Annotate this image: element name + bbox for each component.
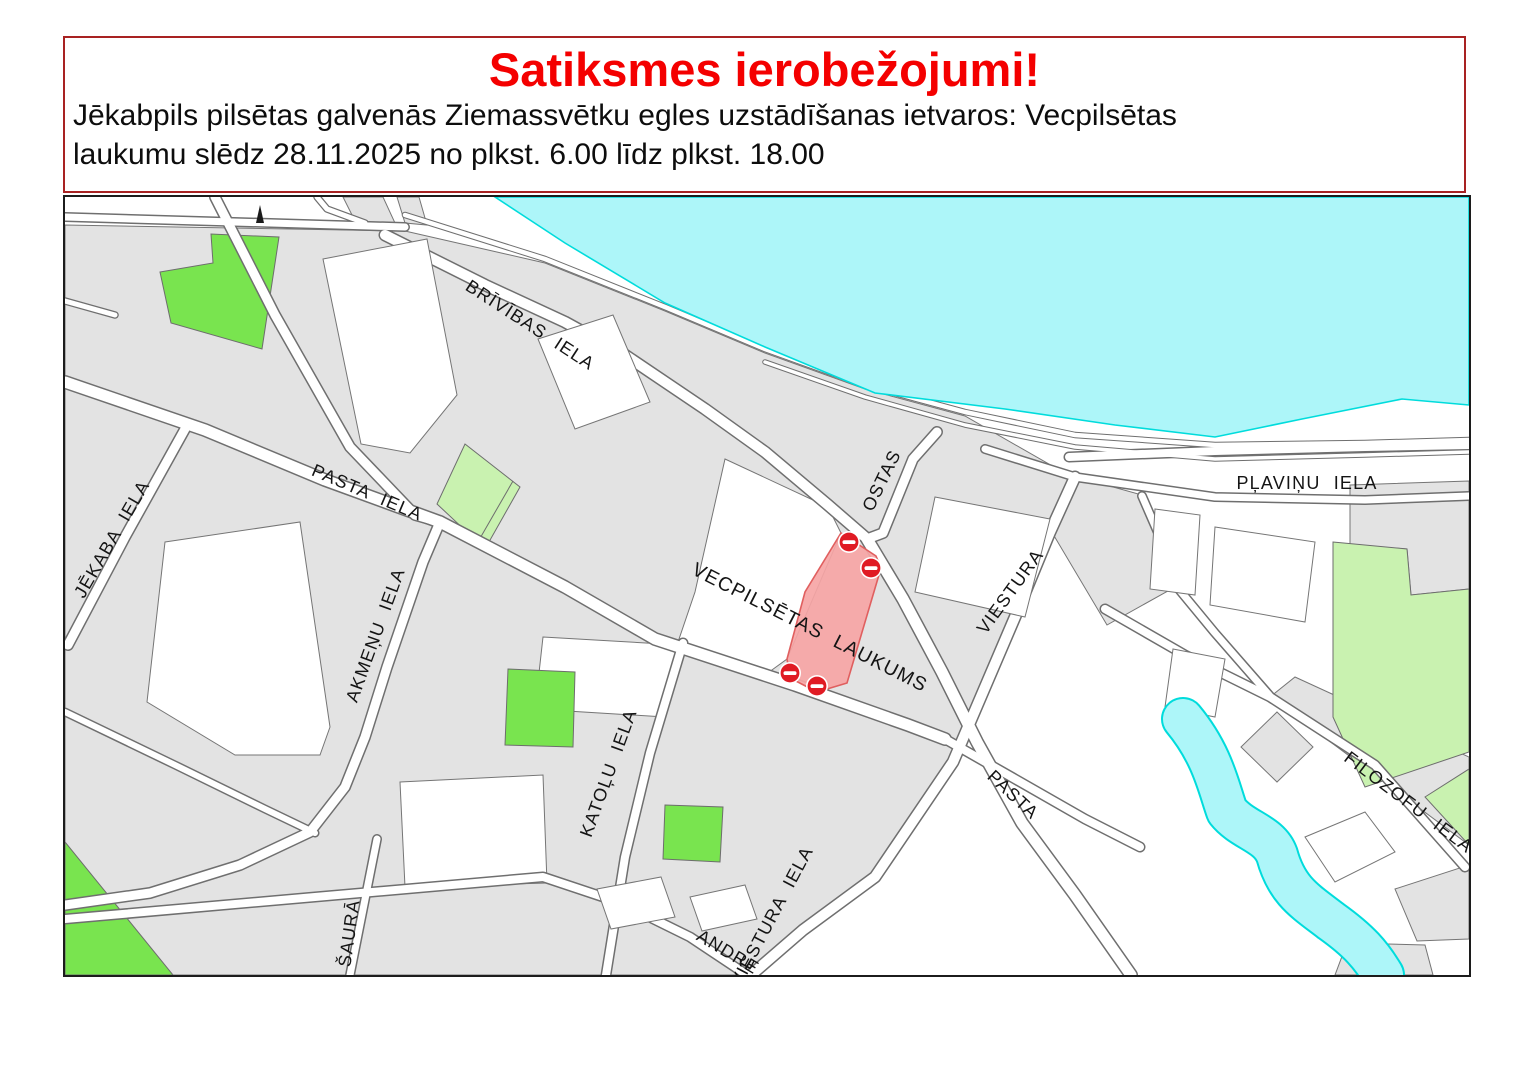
city-block bbox=[1395, 865, 1469, 941]
notice-body-line-1: Jēkabpils pilsētas galvenās Ziemassvētku… bbox=[73, 96, 1464, 135]
park-area bbox=[663, 805, 723, 862]
traffic-notice-header: Satiksmes ierobežojumi! Jēkabpils pilsēt… bbox=[63, 36, 1466, 193]
no-entry-icon bbox=[860, 557, 882, 579]
landmark-spire-icon bbox=[256, 205, 264, 223]
street-label-plavinu-iela: PĻAVIŅU IELA bbox=[1236, 473, 1377, 493]
park-area bbox=[505, 669, 575, 747]
notice-body-line-2: laukumu slēdz 28.11.2025 no plkst. 6.00 … bbox=[73, 135, 1464, 174]
white-block bbox=[400, 775, 547, 887]
map-canvas: BRĪVĪBAS IELA PĻAVIŅU IELA OSTAS VIESTUR… bbox=[65, 197, 1469, 975]
no-entry-icon bbox=[779, 662, 801, 684]
notice-title: Satiksmes ierobežojumi! bbox=[65, 44, 1464, 96]
no-entry-icon bbox=[806, 675, 828, 697]
city-map: BRĪVĪBAS IELA PĻAVIŅU IELA OSTAS VIESTUR… bbox=[63, 195, 1471, 977]
poster-page: Satiksmes ierobežojumi! Jēkabpils pilsēt… bbox=[0, 0, 1528, 1080]
no-entry-icon bbox=[838, 531, 860, 553]
